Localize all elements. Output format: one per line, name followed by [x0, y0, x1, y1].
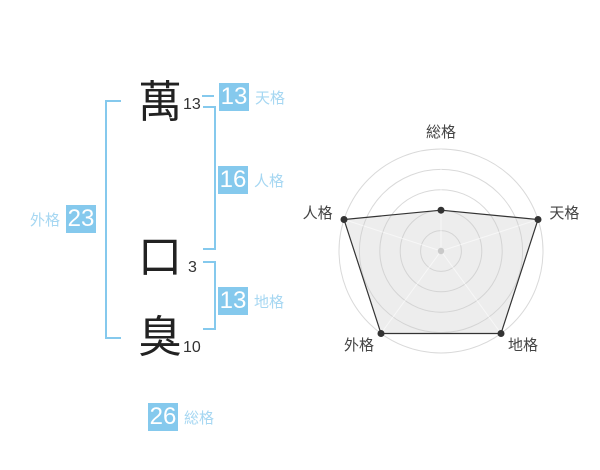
radar-axis-label: 天格 — [549, 205, 579, 222]
radar-data-point — [438, 207, 445, 214]
radar-axis-label: 地格 — [508, 337, 538, 354]
radar-data-point — [498, 330, 505, 337]
radar-chart: 総格天格地格外格人格 — [0, 0, 600, 470]
radar-data-point — [535, 216, 542, 223]
radar-center-dot — [438, 248, 444, 254]
radar-data-point — [378, 330, 385, 337]
radar-axis-label: 総格 — [426, 124, 456, 141]
radar-axis-label: 外格 — [344, 337, 374, 354]
name-fortune-panel: 萬 13 口 3 臭 10 13 天格 16 人格 13 地格 外格 23 26… — [0, 0, 600, 470]
radar-data-point — [341, 216, 348, 223]
radar-axis-label: 人格 — [303, 205, 333, 222]
